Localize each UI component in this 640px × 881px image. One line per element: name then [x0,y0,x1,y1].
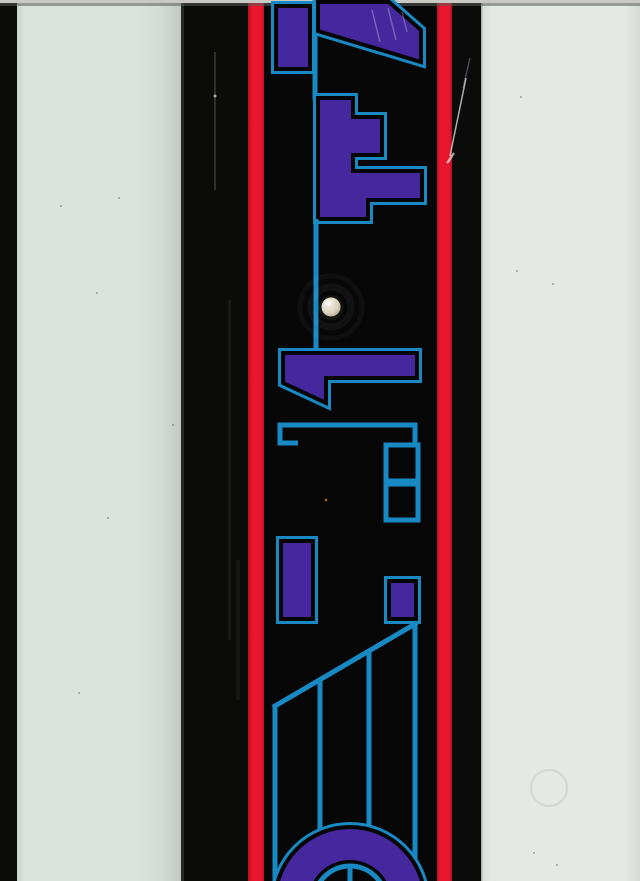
artwork-svg [0,0,640,881]
dust-speck [325,499,328,502]
comb-diagonal [275,624,415,706]
letterform-tall-rect [281,541,313,619]
mounting-bolt [300,276,362,338]
echo-outline-of-bar [280,425,415,445]
scanned-artwork [0,0,640,881]
letterform-small-rect [389,581,416,619]
scratch [463,58,470,88]
bolt-head [322,298,341,317]
dust-speck [214,95,217,98]
scratch [450,78,466,156]
letterform-bar-with-flag [283,353,417,403]
letterform-top [276,0,421,100]
echo-outline-box [386,484,418,520]
striped-w-circle-logo [275,624,425,881]
bolt-highlight [325,301,331,306]
echo-outline-box [386,445,418,481]
echo-outlines [280,425,418,520]
